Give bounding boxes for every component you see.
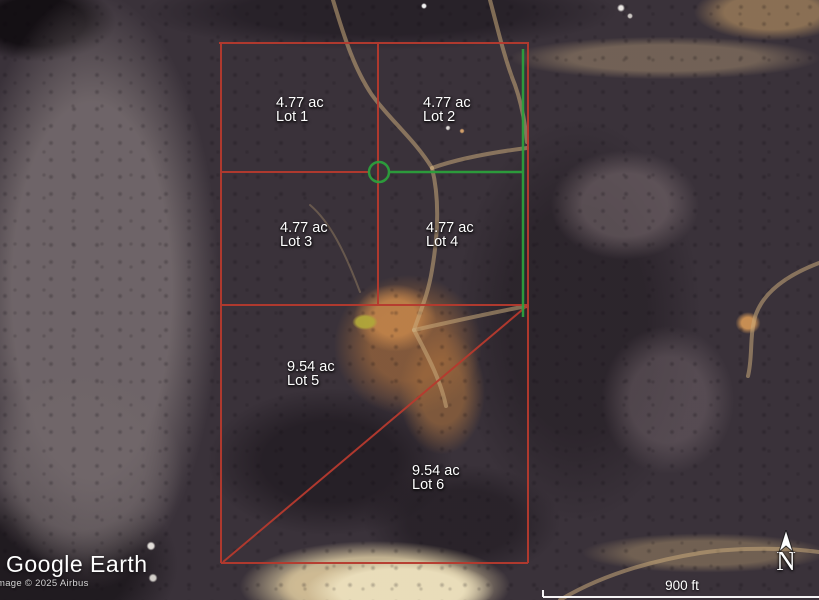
lot-label-6: 9.54 ac Lot 6	[412, 464, 460, 492]
lot-boundaries-layer	[0, 0, 819, 600]
google-earth-logo: Google Earth	[6, 551, 148, 578]
lot-6-name: Lot 6	[412, 478, 460, 492]
lot-5-name: Lot 5	[287, 374, 335, 388]
lot-label-4: 4.77 ac Lot 4	[426, 221, 474, 249]
imagery-copyright: mage © 2025 Airbus	[0, 578, 89, 589]
google-earth-map-view[interactable]: 4.77 ac Lot 1 4.77 ac Lot 2 4.77 ac Lot …	[0, 0, 819, 600]
lot-3-name: Lot 3	[280, 235, 328, 249]
scale-bar-label: 900 ft	[650, 578, 714, 593]
lot-1-acreage: 4.77 ac	[276, 96, 324, 110]
lot-5-acreage: 9.54 ac	[287, 360, 335, 374]
lot-2-acreage: 4.77 ac	[423, 96, 471, 110]
lot-6-acreage: 9.54 ac	[412, 464, 460, 478]
lot-1-name: Lot 1	[276, 110, 324, 124]
lot-label-3: 4.77 ac Lot 3	[280, 221, 328, 249]
lot-label-5: 9.54 ac Lot 5	[287, 360, 335, 388]
north-arrow-icon	[777, 530, 795, 554]
lot-2-name: Lot 2	[423, 110, 471, 124]
lot-label-1: 4.77 ac Lot 1	[276, 96, 324, 124]
lot-3-acreage: 4.77 ac	[280, 221, 328, 235]
compass[interactable]: N	[770, 528, 802, 584]
lot-4-acreage: 4.77 ac	[426, 221, 474, 235]
lot-label-2: 4.77 ac Lot 2	[423, 96, 471, 124]
lot-4-name: Lot 4	[426, 235, 474, 249]
boundary-diagonal	[223, 305, 528, 562]
